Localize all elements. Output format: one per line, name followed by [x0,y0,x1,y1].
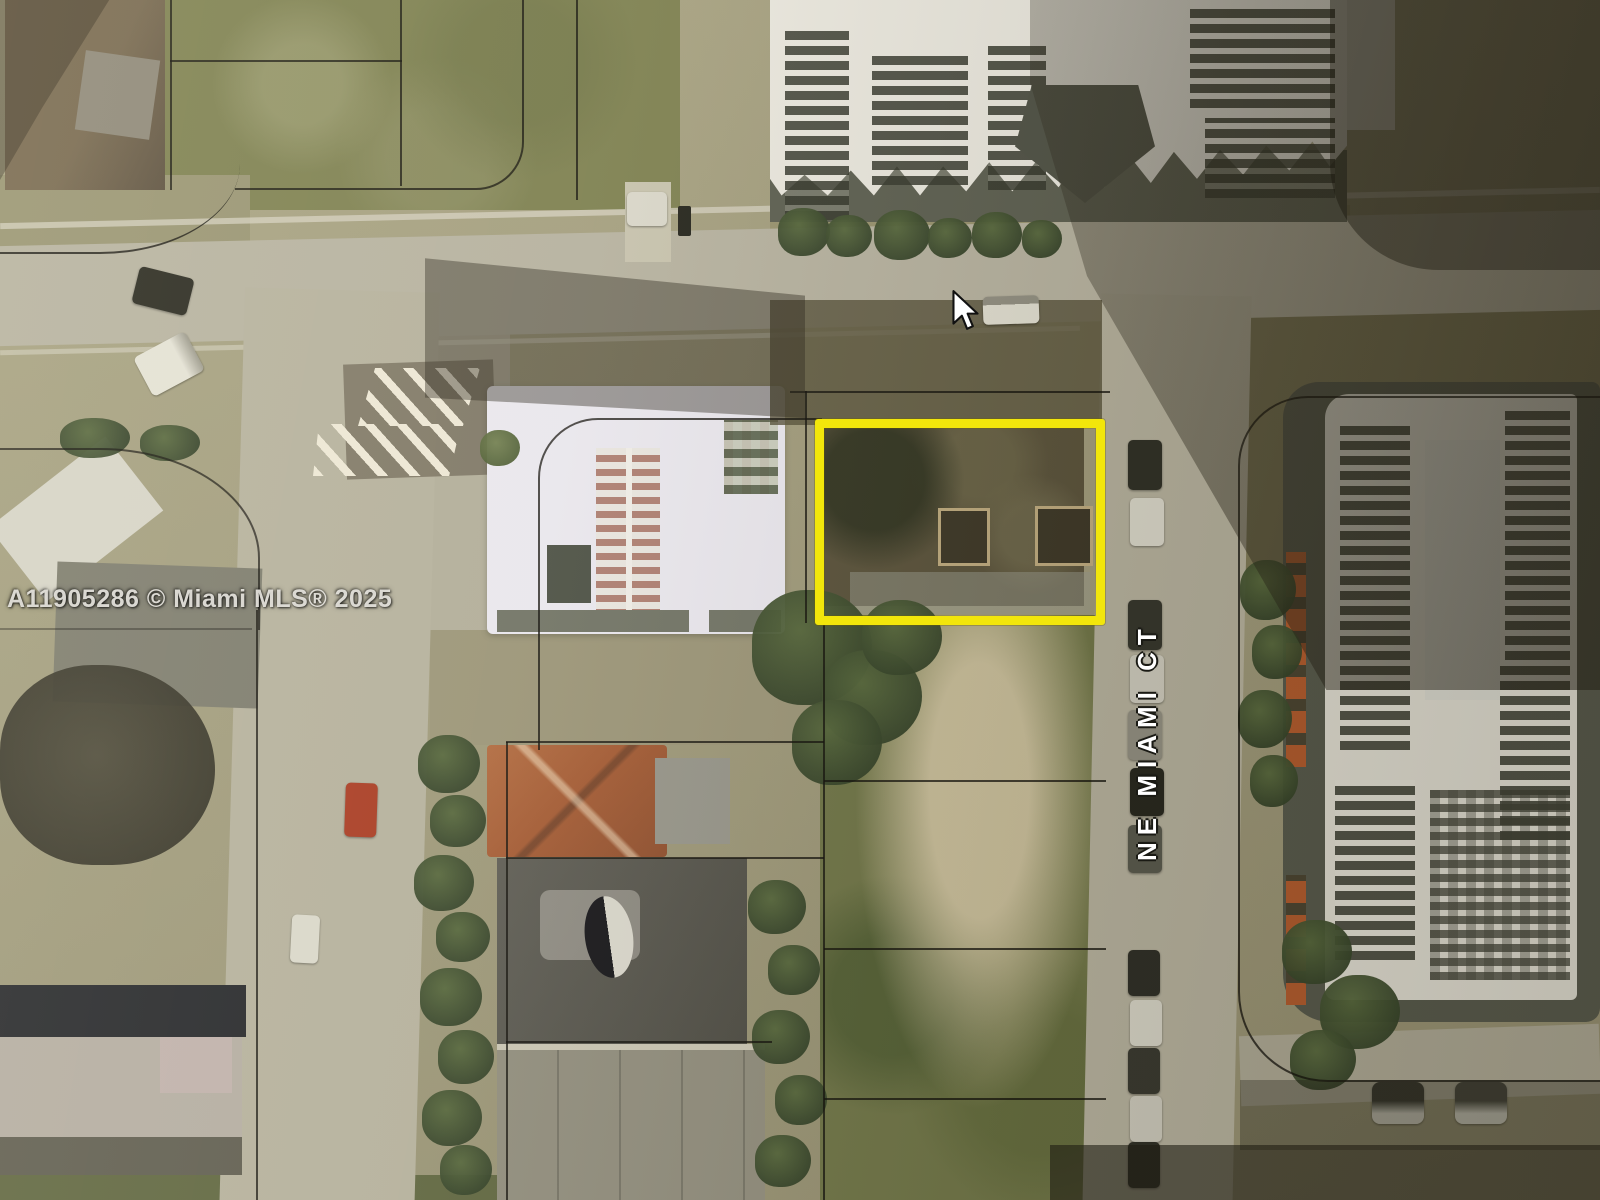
tree [768,945,820,995]
building-bottom-center [497,1044,765,1200]
tree [752,1010,810,1064]
building-bottom-left-pink [160,1037,232,1093]
shadow-bottom-right-corner [1050,1145,1600,1200]
building-gray-wing [655,758,730,844]
building-bottom-left-strip [0,1137,242,1175]
car [983,295,1040,325]
tree [430,795,486,847]
parcel-line [824,780,1106,782]
parked-car [1128,950,1160,996]
mouse-cursor-icon [948,289,982,333]
utility-pole [678,206,691,236]
parked-car [1130,498,1164,546]
garage-car-rows [785,30,849,220]
garage-car-rows [872,50,968,185]
tree [748,880,806,934]
parcel-line-corner [235,0,524,190]
tree [422,1090,482,1146]
parcel-line [823,618,825,1200]
building-red-tile-roof [487,745,667,857]
car [290,914,320,963]
crosswalk-stripes-lower [313,424,461,476]
parked-car [1128,440,1162,490]
parcel-line [824,1098,1106,1100]
parcel-line [576,0,578,200]
mls-watermark: A11905286 © Miami MLS® 2025 [7,585,392,614]
glare-corner-top-right [1330,0,1600,270]
parcel-line [506,857,824,859]
street-name-label: NE MIAMI CT [1132,592,1194,892]
subject-parcel-highlight [815,419,1105,625]
building-bottom-left-darkband [0,985,246,1037]
subject-parcel-ground [770,300,1102,425]
car-red [344,782,378,837]
tree [414,855,474,911]
parcel-line [256,610,258,1200]
tree [755,1135,811,1187]
parked-car [1130,1096,1162,1142]
tree [420,968,482,1026]
vehicle [627,192,667,226]
parked-car [1130,1000,1162,1046]
tree [438,1030,494,1084]
parcel-line-rounded-corner [538,418,822,750]
parcel-line [824,948,1106,950]
parcel-line [506,1041,772,1043]
parcel-line [506,742,508,1200]
tree [436,912,490,962]
tree [418,735,480,793]
shadow-bottom-right-road [1240,1080,1600,1150]
parcel-line [0,628,252,630]
aerial-photo: A11905286 © Miami MLS® 2025 NE MIAMI CT [0,0,1600,1200]
parked-car [1128,1048,1160,1094]
parcel-line [790,391,1110,393]
